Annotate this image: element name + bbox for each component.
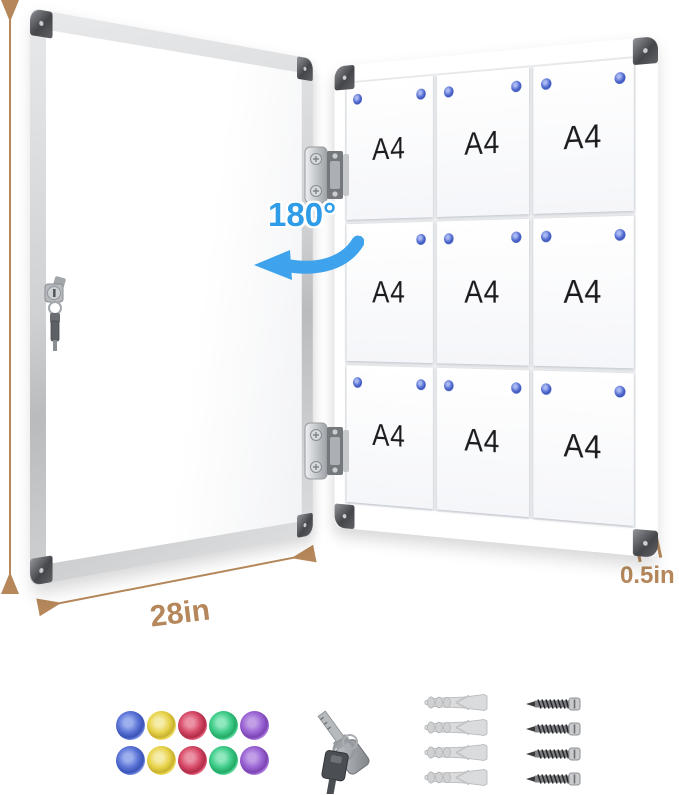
height-arrow-top-icon	[1, 0, 19, 22]
keys-icon	[312, 690, 390, 794]
screw-icon	[526, 747, 583, 761]
magnet-pin-icon	[541, 78, 551, 90]
a4-label: A4	[372, 418, 405, 455]
height-arrow-bottom-icon	[1, 572, 19, 594]
board-corner-cap	[335, 65, 355, 91]
magnet-icon	[209, 711, 238, 740]
screw-icon	[526, 697, 583, 711]
magnet-icon	[116, 711, 145, 740]
a4-sheet: A4	[534, 58, 634, 214]
height-dimension-line	[9, 4, 11, 590]
screw-set	[526, 697, 583, 786]
magnet-icon	[240, 746, 269, 775]
board-corner-cap	[633, 529, 658, 558]
hinge-icon	[304, 422, 350, 480]
a4-label: A4	[372, 130, 405, 167]
magnet-icon	[178, 746, 207, 775]
door-corner-cap	[297, 56, 313, 81]
a4-sheet: A4	[534, 371, 634, 526]
a4-sheet: A4	[346, 76, 432, 220]
magnet-pin-icon	[615, 386, 626, 398]
magnet-pin-icon	[615, 72, 626, 85]
a4-label: A4	[464, 274, 500, 311]
door-corner-cap	[30, 8, 53, 39]
magnet-pin-icon	[444, 86, 454, 98]
a4-label: A4	[372, 275, 405, 310]
magnet-pin-icon	[353, 94, 362, 105]
a4-sheet: A4	[346, 365, 432, 509]
a4-label: A4	[564, 117, 603, 157]
magnet-icon	[209, 746, 238, 775]
product-image: 38in A4 A4 A4 A4 A4 A4 A4 A4 A4	[0, 0, 679, 795]
a4-sheet: A4	[534, 216, 634, 369]
a4-sheet: A4	[437, 368, 530, 517]
wall-anchor-icon	[424, 769, 488, 786]
depth-label: 0.5in	[620, 562, 675, 590]
magnet-pin-icon	[444, 380, 454, 391]
board-corner-cap	[335, 503, 355, 529]
screw-icon	[526, 722, 583, 736]
wall-anchor-icon	[424, 694, 488, 711]
magnet-pin-icon	[541, 231, 551, 243]
lock-with-key-icon	[42, 276, 76, 356]
door-corner-cap	[30, 555, 53, 586]
wall-anchor-icon	[424, 719, 488, 736]
magnet-pin-icon	[416, 88, 425, 100]
magnet-pin-icon	[512, 80, 522, 92]
magnet-icon	[240, 711, 269, 740]
width-arrow-right-icon	[290, 545, 317, 567]
a4-label: A4	[564, 273, 603, 311]
magnet-icon	[178, 711, 207, 740]
magnet-pin-icon	[512, 382, 522, 394]
swing-arrow-icon	[252, 236, 364, 284]
magnet-pin-icon	[416, 379, 425, 390]
door-corner-cap	[297, 513, 313, 538]
magnet-pin-icon	[416, 234, 425, 245]
swing-angle-label: 180°	[268, 196, 336, 234]
notice-board: A4 A4 A4 A4 A4 A4 A4 A4 A4	[335, 36, 658, 558]
magnet-set	[116, 711, 269, 775]
width-label: 28in	[148, 593, 212, 634]
wall-anchor-set	[424, 694, 488, 786]
a4-label: A4	[464, 422, 500, 461]
a4-sheet: A4	[437, 219, 530, 366]
magnet-pin-icon	[615, 229, 626, 241]
magnet-icon	[147, 711, 176, 740]
a4-label: A4	[564, 427, 603, 467]
width-arrow-left-icon	[36, 594, 63, 616]
magnet-pin-icon	[512, 231, 522, 243]
magnet-icon	[116, 746, 145, 775]
magnet-pin-icon	[541, 383, 551, 395]
screw-icon	[526, 772, 583, 786]
magnet-icon	[147, 746, 176, 775]
a4-label: A4	[464, 124, 500, 163]
magnet-pin-icon	[444, 233, 454, 244]
door-whiteboard-face	[46, 30, 302, 565]
board-corner-cap	[633, 36, 658, 65]
a4-sheet: A4	[437, 67, 530, 217]
a4-sheet-grid: A4 A4 A4 A4 A4 A4 A4 A4 A4	[346, 58, 633, 526]
magnet-pin-icon	[353, 377, 362, 388]
wall-anchor-icon	[424, 744, 488, 761]
